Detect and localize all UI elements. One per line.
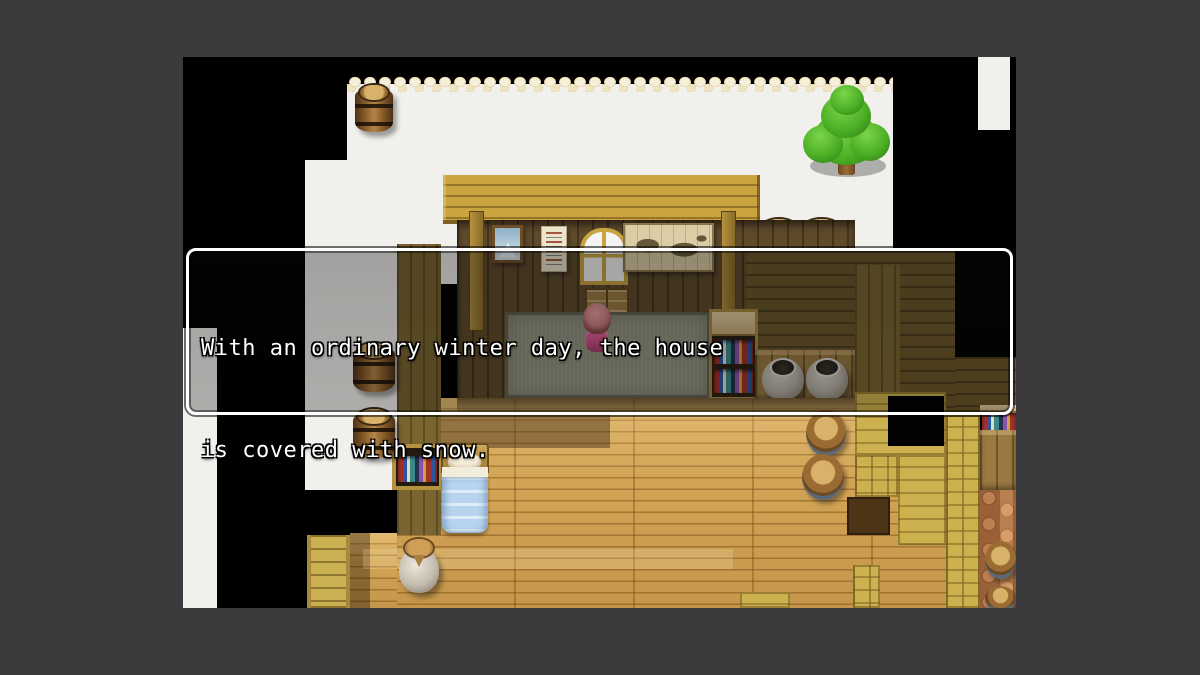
floor-shadow-strip xyxy=(350,533,370,608)
message-line-1: With an ordinary winter day, the house xyxy=(201,332,998,366)
tree-foliage xyxy=(830,85,864,115)
ceramic-jar xyxy=(399,547,439,593)
barrel-sprite xyxy=(355,88,393,132)
message-line-2: is covered with snow. xyxy=(201,434,998,468)
bucket-sprite xyxy=(985,586,1016,608)
pale-wall-piece-bottom xyxy=(740,592,790,608)
game-screenshot: With an ordinary winter day, the house i… xyxy=(0,0,1200,675)
snow-field-top-right xyxy=(978,57,1010,130)
snow-field-left-upper xyxy=(305,160,347,252)
pale-wall-piece xyxy=(853,565,880,608)
game-viewport: With an ordinary winter day, the house i… xyxy=(183,57,1016,608)
message-window[interactable]: With an ordinary winter day, the house i… xyxy=(186,248,1013,415)
house-exterior-wall-band xyxy=(443,175,760,224)
tree-sprite xyxy=(800,85,893,178)
message-text: With an ordinary winter day, the house i… xyxy=(201,264,998,536)
bucket-sprite xyxy=(985,541,1016,579)
crate-ladder xyxy=(307,535,350,608)
